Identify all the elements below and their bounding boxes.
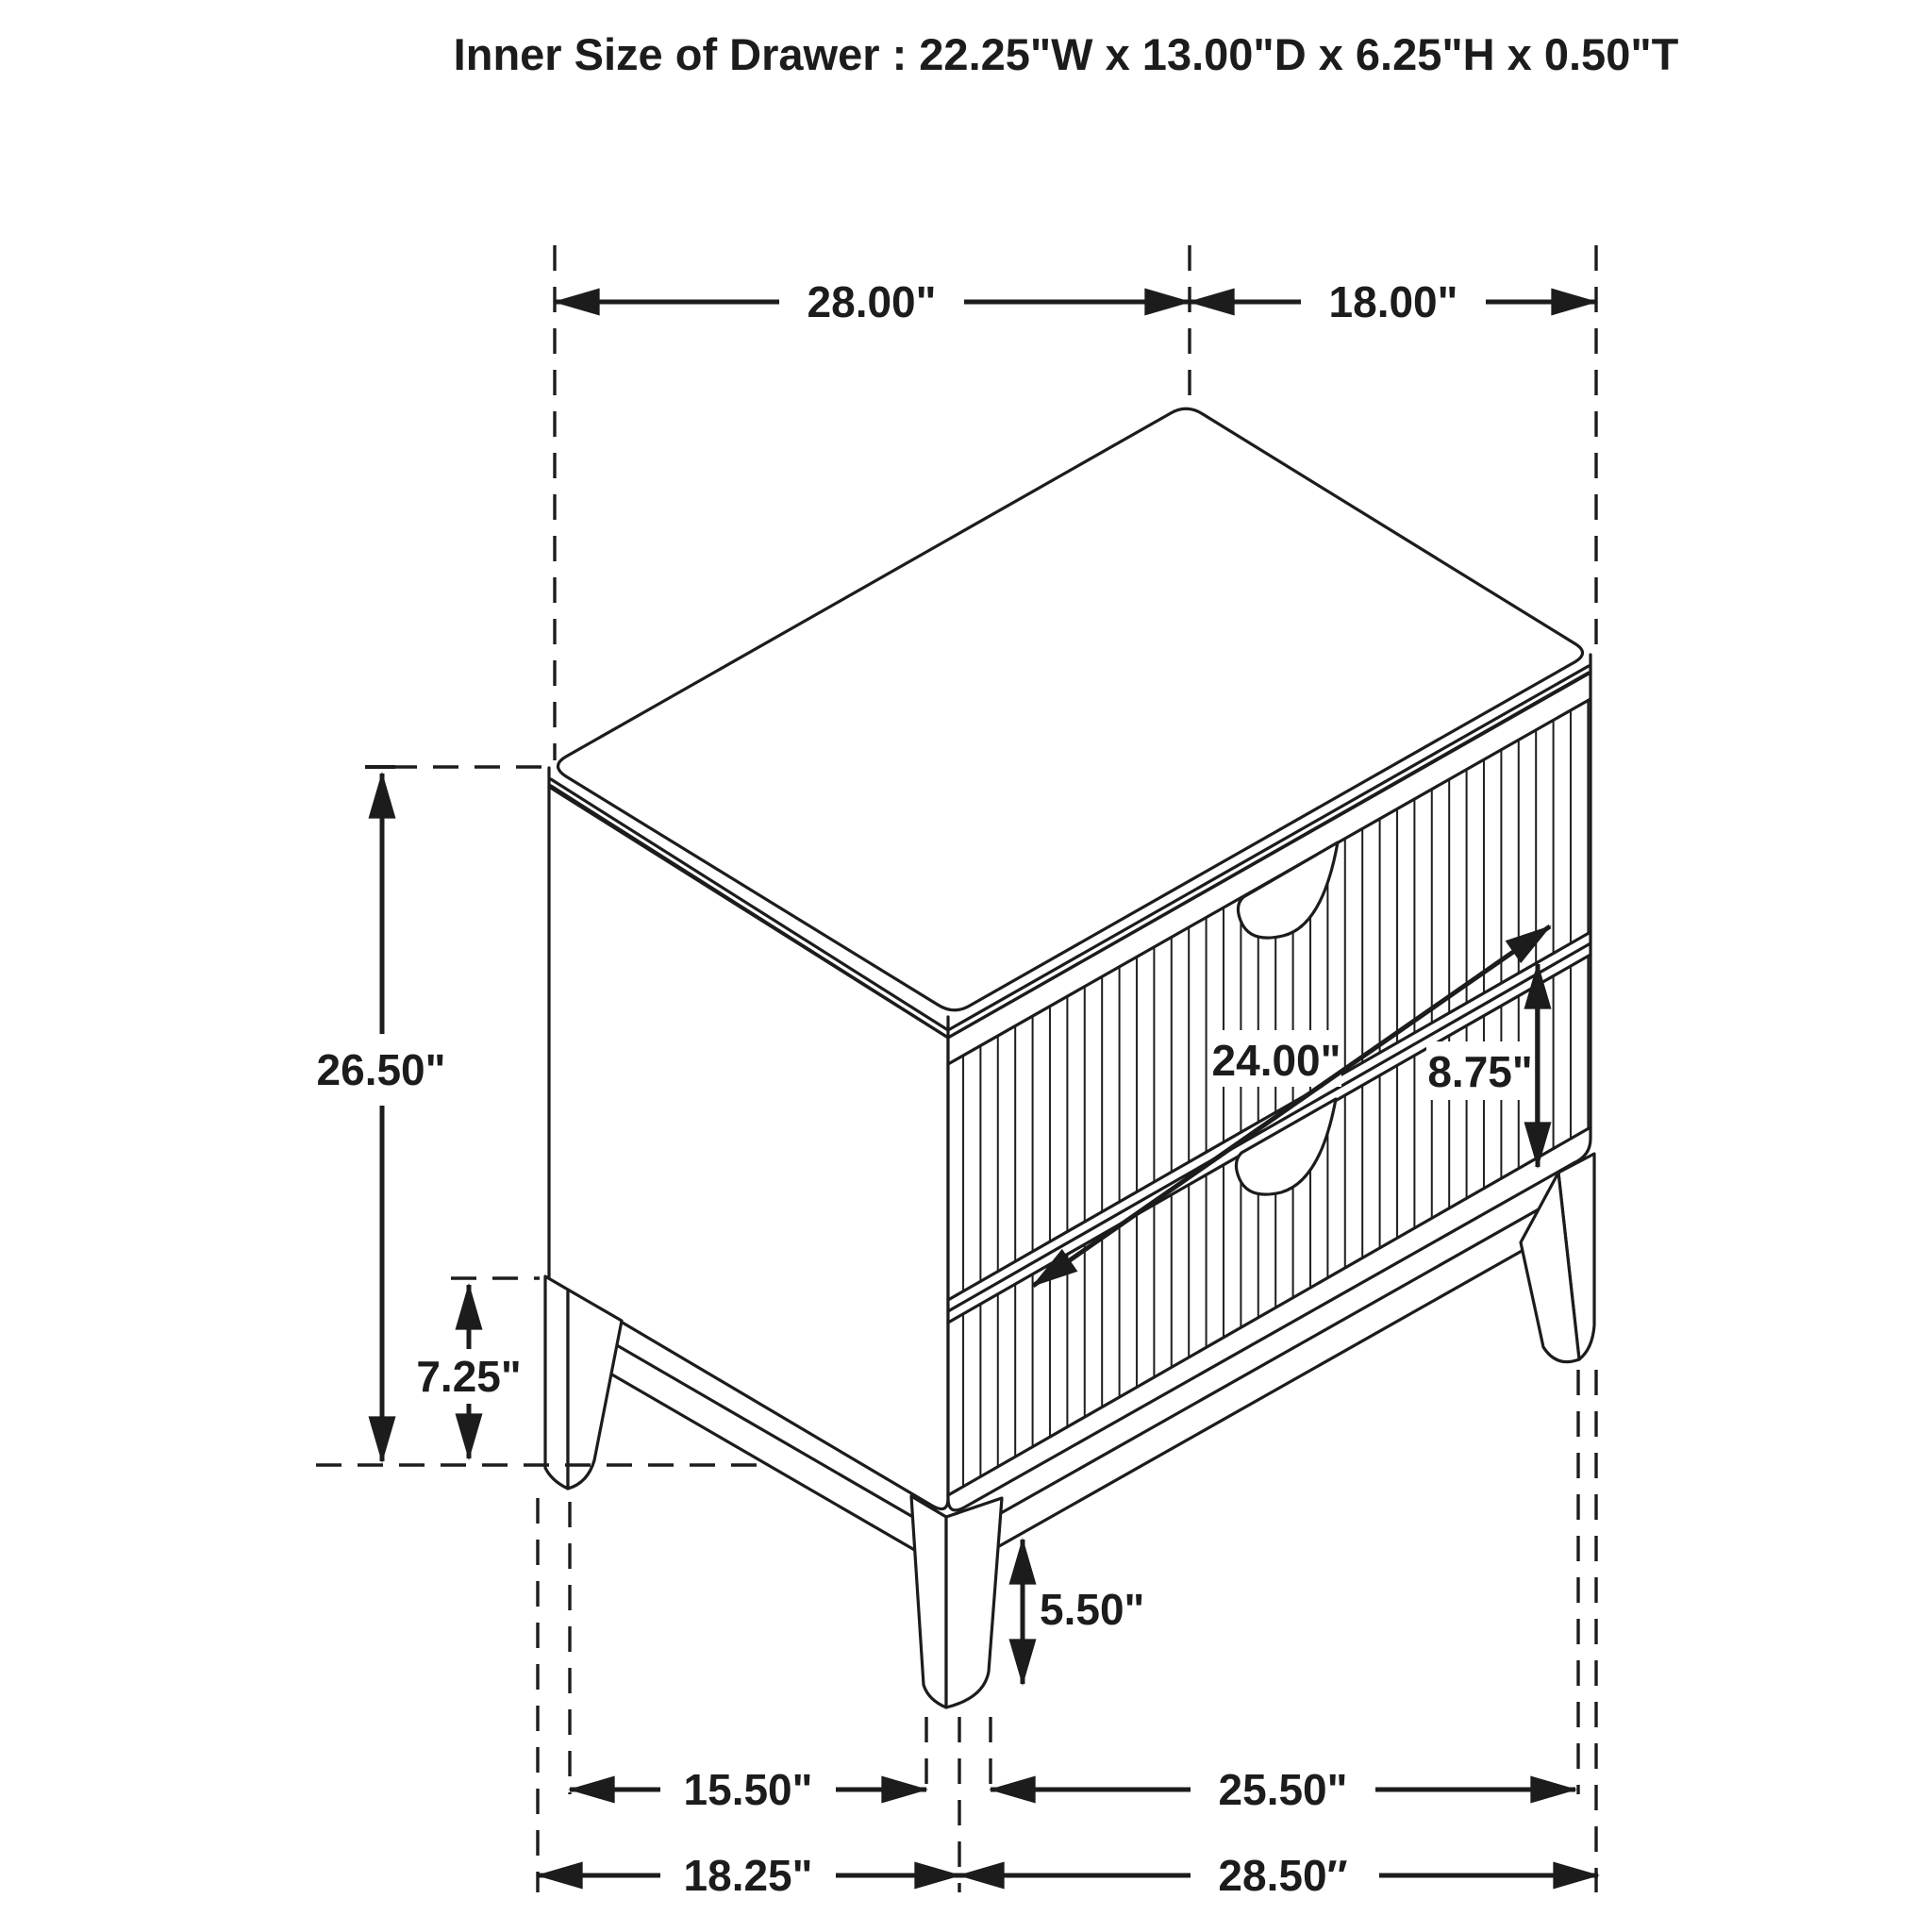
nightstand-dimension-diagram: Inner Size of Drawer : 22.25"W x 13.00"D… <box>0 0 1932 1932</box>
front-leg <box>911 1496 1002 1707</box>
label-leg-span-front-outer: 28.50″ <box>1218 1851 1347 1900</box>
label-leg-span-side-outer: 18.25" <box>684 1851 813 1900</box>
label-leg-span-side-inner: 15.50" <box>684 1765 813 1814</box>
label-leg-span-front-inner: 25.50" <box>1219 1765 1348 1814</box>
label-drawer-width: 24.00" <box>1212 1036 1341 1085</box>
label-top-width: 28.00" <box>808 277 937 326</box>
diagram-page: Inner Size of Drawer : 22.25"W x 13.00"D… <box>0 0 1932 1932</box>
label-front-leg-height: 5.50" <box>1040 1585 1144 1634</box>
label-overall-height: 26.50" <box>317 1045 446 1094</box>
diagram-title: Inner Size of Drawer : 22.25"W x 13.00"D… <box>454 29 1679 79</box>
label-side-leg-height: 7.25" <box>416 1352 521 1401</box>
label-top-depth: 18.00" <box>1329 277 1458 326</box>
back-left-leg-side-face <box>545 1276 568 1489</box>
label-drawer-front-height: 8.75" <box>1427 1047 1532 1096</box>
